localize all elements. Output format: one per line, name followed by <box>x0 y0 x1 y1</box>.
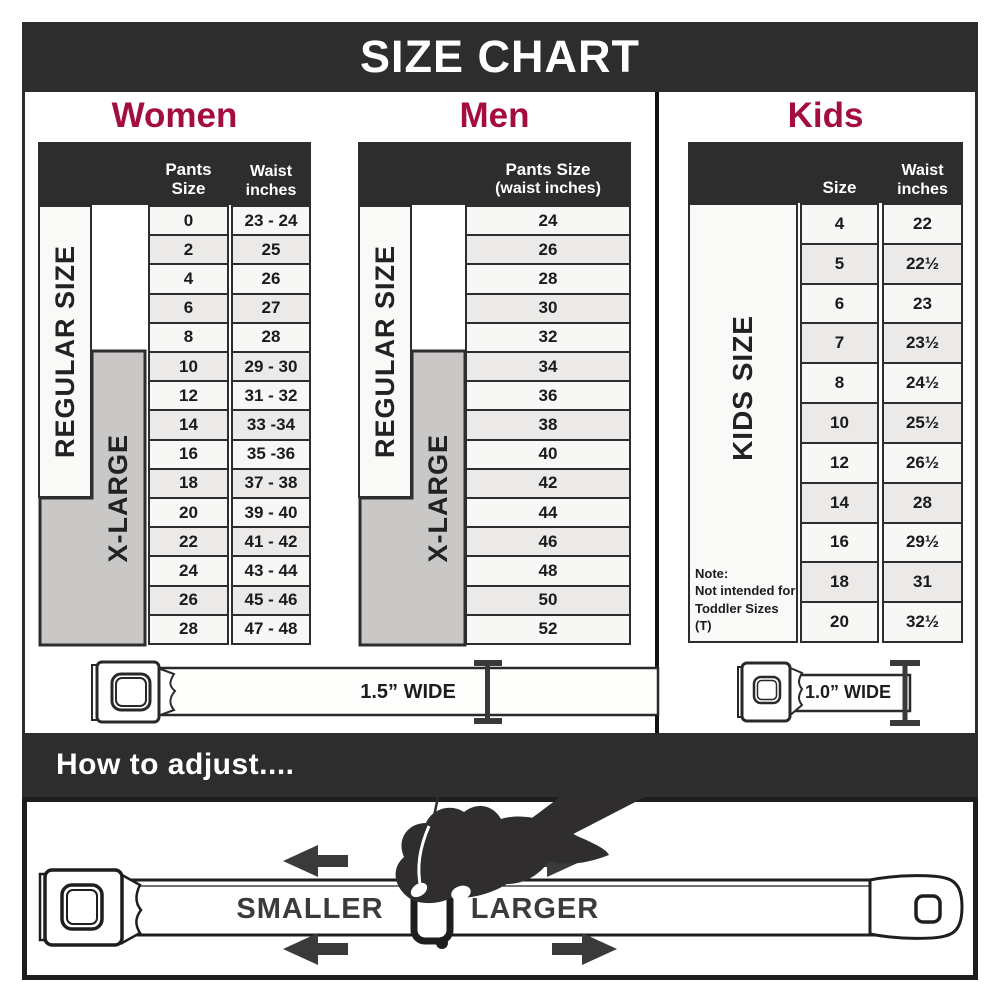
adjust-belt-illustration <box>30 797 970 975</box>
women-size-cell: 14 <box>148 409 229 440</box>
women-xlarge-label-wrap: X-LARGE <box>92 351 145 645</box>
kids-col2-header: Waist inches <box>882 162 963 199</box>
women-waist-cell: 23 - 24 <box>231 205 311 236</box>
women-waist-cell: 37 - 38 <box>231 468 311 499</box>
men-size-cell: 52 <box>465 614 631 645</box>
women-size-cell: 16 <box>148 439 229 470</box>
women-size-cell: 22 <box>148 526 229 557</box>
women-size-cell: 8 <box>148 322 229 353</box>
women-size-cell: 24 <box>148 555 229 586</box>
men-size-cell: 28 <box>465 263 631 294</box>
women-waist-cell: 25 <box>231 234 311 265</box>
men-size-cell: 46 <box>465 526 631 557</box>
men-size-cell: 36 <box>465 380 631 411</box>
women-size-cell: 4 <box>148 263 229 294</box>
women-size-cell: 20 <box>148 497 229 528</box>
women-waist-cell: 35 -36 <box>231 439 311 470</box>
kids-waist-cell: 22½ <box>882 243 963 285</box>
men-size-cell: 48 <box>465 555 631 586</box>
men-size-column: 242628303234363840424446485052 <box>465 205 631 645</box>
women-size-column: 0246810121416182022242628 <box>148 205 229 645</box>
women-xlarge-label: X-LARGE <box>103 434 134 563</box>
kids-waist-cell: 25½ <box>882 402 963 444</box>
women-waist-cell: 47 - 48 <box>231 614 311 645</box>
kids-waist-cell: 22 <box>882 203 963 245</box>
men-size-cell: 24 <box>465 205 631 236</box>
kids-waist-cell: 23½ <box>882 322 963 364</box>
kids-size-cell: 5 <box>800 243 879 285</box>
women-waist-cell: 29 - 30 <box>231 351 311 382</box>
kids-size-cell: 16 <box>800 522 879 564</box>
kids-waist-cell: 29½ <box>882 522 963 564</box>
kids-size-band: KIDS SIZE Note: Not intended for Toddler… <box>688 203 798 643</box>
men-size-cell: 40 <box>465 439 631 470</box>
women-size-cell: 6 <box>148 293 229 324</box>
women-waist-cell: 27 <box>231 293 311 324</box>
size-chart-graphic: SIZE CHART Women Men Kids Pants Size Wai… <box>0 0 1000 1000</box>
women-size-cell: 26 <box>148 585 229 616</box>
kids-belt-width-label: 1.0” WIDE <box>793 682 903 703</box>
adult-belt-width-label: 1.5” WIDE <box>338 681 478 704</box>
men-xlarge-label-wrap: X-LARGE <box>412 351 465 645</box>
section-divider <box>655 92 659 733</box>
size-chart-title-band: SIZE CHART <box>22 22 978 92</box>
kids-waist-cell: 26½ <box>882 442 963 484</box>
adjust-heading: How to adjust.... <box>56 748 295 782</box>
women-waist-cell: 26 <box>231 263 311 294</box>
women-waist-cell: 31 - 32 <box>231 380 311 411</box>
men-size-cell: 34 <box>465 351 631 382</box>
women-heading: Women <box>38 94 311 138</box>
kids-waist-cell: 23 <box>882 283 963 325</box>
men-size-cell: 42 <box>465 468 631 499</box>
men-size-cell: 50 <box>465 585 631 616</box>
kids-size-cell: 6 <box>800 283 879 325</box>
kids-heading: Kids <box>688 94 963 138</box>
women-col2-header: Waist inches <box>231 163 311 200</box>
women-waist-cell: 43 - 44 <box>231 555 311 586</box>
kids-size-cell: 14 <box>800 482 879 524</box>
kids-waist-column: 2222½2323½24½25½26½2829½3132½ <box>882 203 963 643</box>
kids-size-cell: 10 <box>800 402 879 444</box>
men-size-cell: 26 <box>465 234 631 265</box>
women-col1-header: Pants Size <box>148 160 229 199</box>
women-size-cell: 18 <box>148 468 229 499</box>
kids-waist-cell: 28 <box>882 482 963 524</box>
women-table-header: Pants Size Waist inches <box>38 142 311 205</box>
men-size-cell: 32 <box>465 322 631 353</box>
larger-label: LARGER <box>450 893 620 926</box>
kids-waist-cell: 24½ <box>882 362 963 404</box>
kids-table-header: Size Waist inches <box>688 142 963 203</box>
kids-size-label: KIDS SIZE <box>727 315 759 461</box>
men-size-cell: 30 <box>465 293 631 324</box>
women-waist-cell: 39 - 40 <box>231 497 311 528</box>
kids-size-cell: 20 <box>800 601 879 643</box>
women-waist-cell: 41 - 42 <box>231 526 311 557</box>
men-heading: Men <box>358 94 631 138</box>
kids-waist-cell: 32½ <box>882 601 963 643</box>
kids-size-column: 45678101214161820 <box>800 203 879 643</box>
women-waist-cell: 45 - 46 <box>231 585 311 616</box>
kids-size-cell: 18 <box>800 561 879 603</box>
women-size-cell: 0 <box>148 205 229 236</box>
women-waist-cell: 33 -34 <box>231 409 311 440</box>
page-title: SIZE CHART <box>360 31 640 83</box>
kids-waist-cell: 31 <box>882 561 963 603</box>
women-waist-cell: 28 <box>231 322 311 353</box>
kids-col1-header: Size <box>800 178 879 198</box>
adjust-heading-band: How to adjust.... <box>22 733 978 797</box>
kids-size-cell: 8 <box>800 362 879 404</box>
men-xlarge-label: X-LARGE <box>423 434 454 563</box>
kids-note: Note: Not intended for Toddler Sizes (T) <box>695 565 796 635</box>
kids-size-cell: 12 <box>800 442 879 484</box>
men-size-cell: 44 <box>465 497 631 528</box>
women-size-cell: 10 <box>148 351 229 382</box>
smaller-label: SMALLER <box>220 893 400 926</box>
men-size-cell: 38 <box>465 409 631 440</box>
men-table-header: Pants Size (waist inches) <box>358 142 631 205</box>
women-waist-column: 23 - 242526272829 - 3031 - 3233 -3435 -3… <box>231 205 311 645</box>
women-size-cell: 2 <box>148 234 229 265</box>
buckle-body-icon <box>40 870 141 945</box>
kids-size-cell: 4 <box>800 203 879 245</box>
women-size-cell: 12 <box>148 380 229 411</box>
women-size-cell: 28 <box>148 614 229 645</box>
men-col-header: Pants Size (waist inches) <box>465 160 631 198</box>
kids-size-cell: 7 <box>800 322 879 364</box>
